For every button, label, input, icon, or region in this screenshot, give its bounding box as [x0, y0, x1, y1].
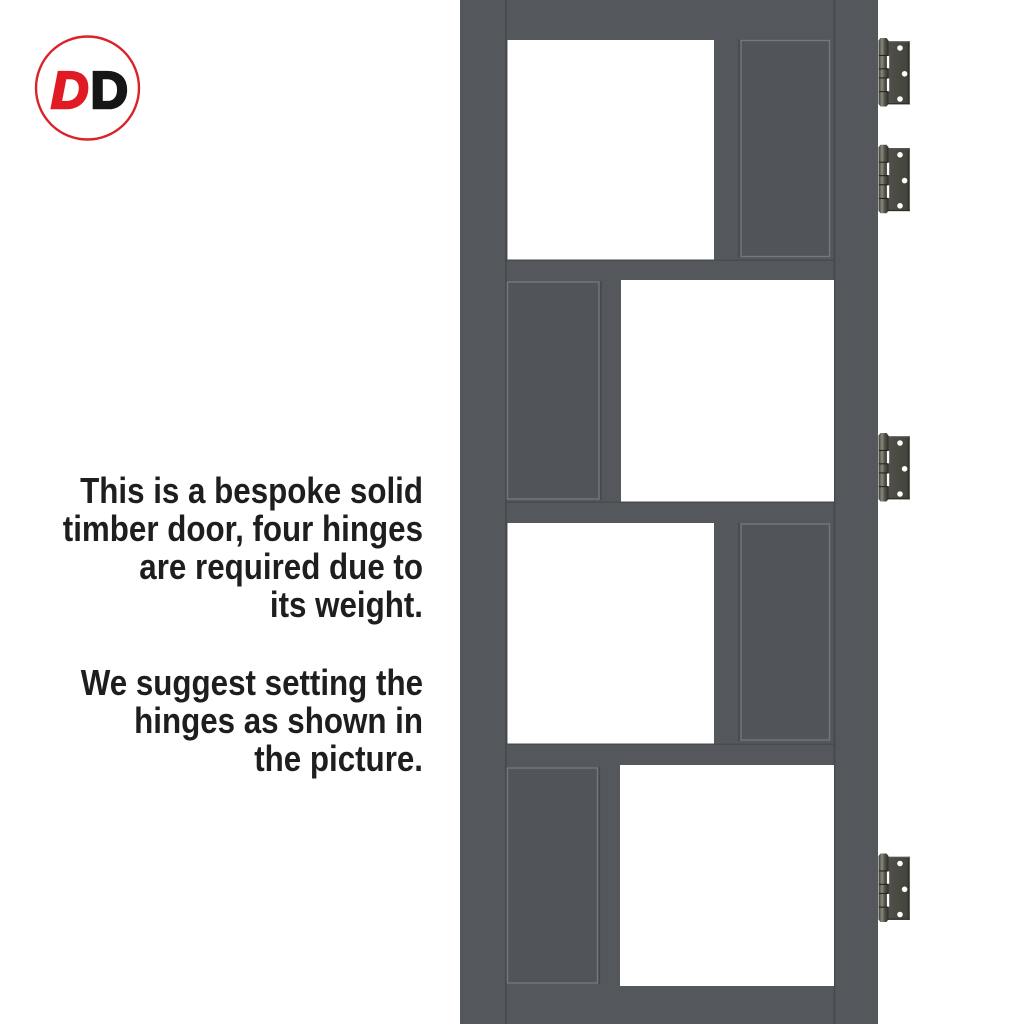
svg-text:D: D [51, 62, 89, 120]
svg-text:D: D [91, 62, 129, 120]
